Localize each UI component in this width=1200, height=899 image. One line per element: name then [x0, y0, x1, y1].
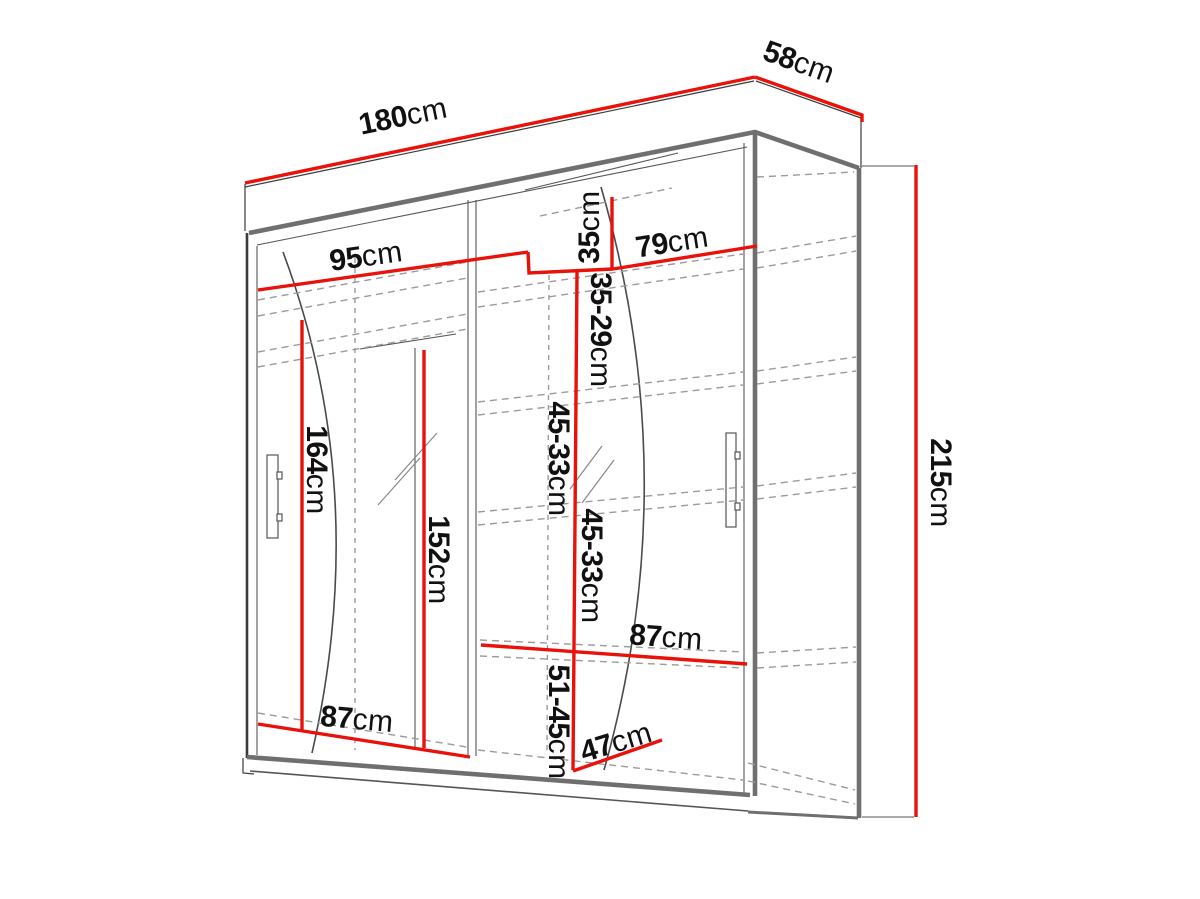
wardrobe-dimension-diagram: 180cm 58cm 215cm 95cm 79cm 35cm 35-29cm …	[0, 0, 1200, 899]
dim-label-top-compartment: 35cm	[573, 190, 606, 263]
top-board-right-edge	[756, 81, 861, 118]
dim-line-overall-width	[245, 77, 755, 183]
diagram-canvas: 180cm 58cm 215cm 95cm 79cm 35cm 35-29cm …	[0, 0, 1200, 899]
bottom-front-edge	[247, 757, 750, 795]
mirror-top-edge	[360, 334, 456, 349]
dim-label-overall-height: 215cm	[925, 438, 958, 528]
top-board-front-edge	[245, 81, 754, 187]
dim-label-left-bottom-width: 87cm	[319, 699, 395, 738]
base-right-bottom-edge	[748, 812, 858, 818]
dim-label-right-top-width: 79cm	[633, 220, 711, 264]
dim-label-hanging-height: 164cm	[301, 425, 334, 515]
left-door-handle	[267, 455, 282, 538]
dim-label-middle-shelf-lower: 45-33cm	[576, 508, 609, 623]
mirror-shine-mark	[395, 433, 437, 480]
dim-label-right-shelf-width: 87cm	[628, 618, 703, 656]
dim-label-bottom-compartment: 51-45cm	[543, 664, 576, 779]
dim-label-mirror-height: 152cm	[423, 515, 456, 605]
right-door-handle	[726, 433, 740, 527]
dim-label-middle-shelf-upper: 45-33cm	[543, 401, 576, 516]
dim-label-overall-width: 180cm	[356, 91, 450, 141]
mirror-shine-mark	[378, 458, 420, 505]
dim-line-right-shelf-width	[481, 645, 747, 664]
dim-label-upper-shelf-spacing: 35-29cm	[585, 272, 618, 387]
